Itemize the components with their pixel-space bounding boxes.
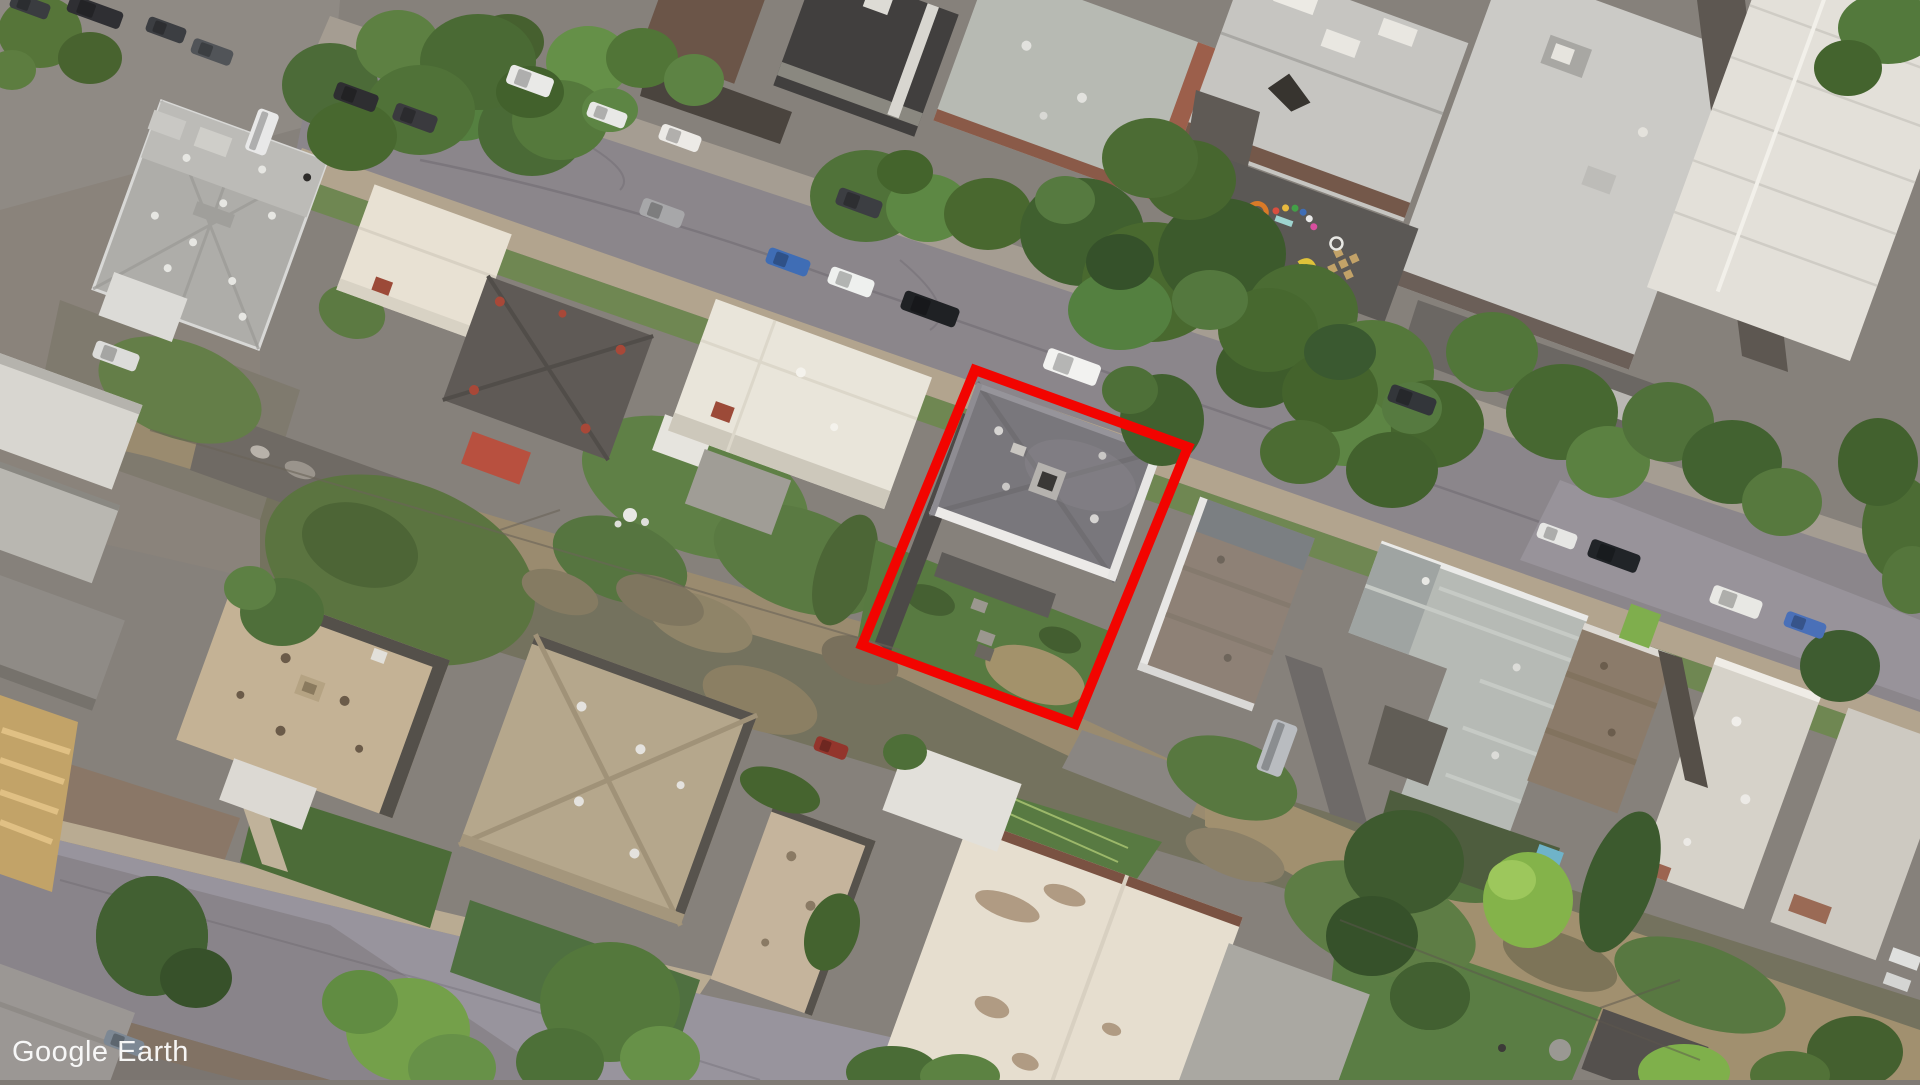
svg-text:Google Earth: Google Earth — [12, 1036, 189, 1068]
